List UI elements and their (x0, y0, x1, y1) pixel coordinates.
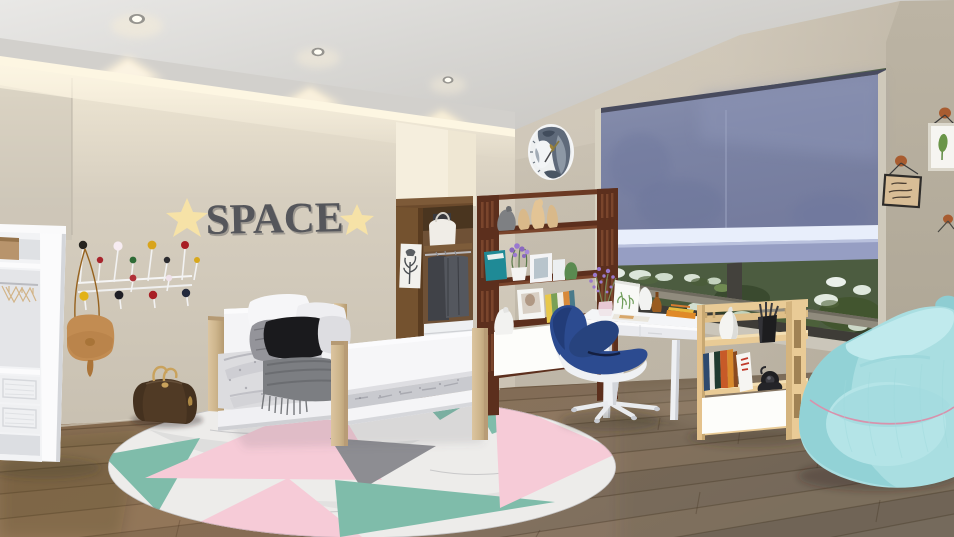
svg-text:SPACE: SPACE (205, 194, 344, 244)
